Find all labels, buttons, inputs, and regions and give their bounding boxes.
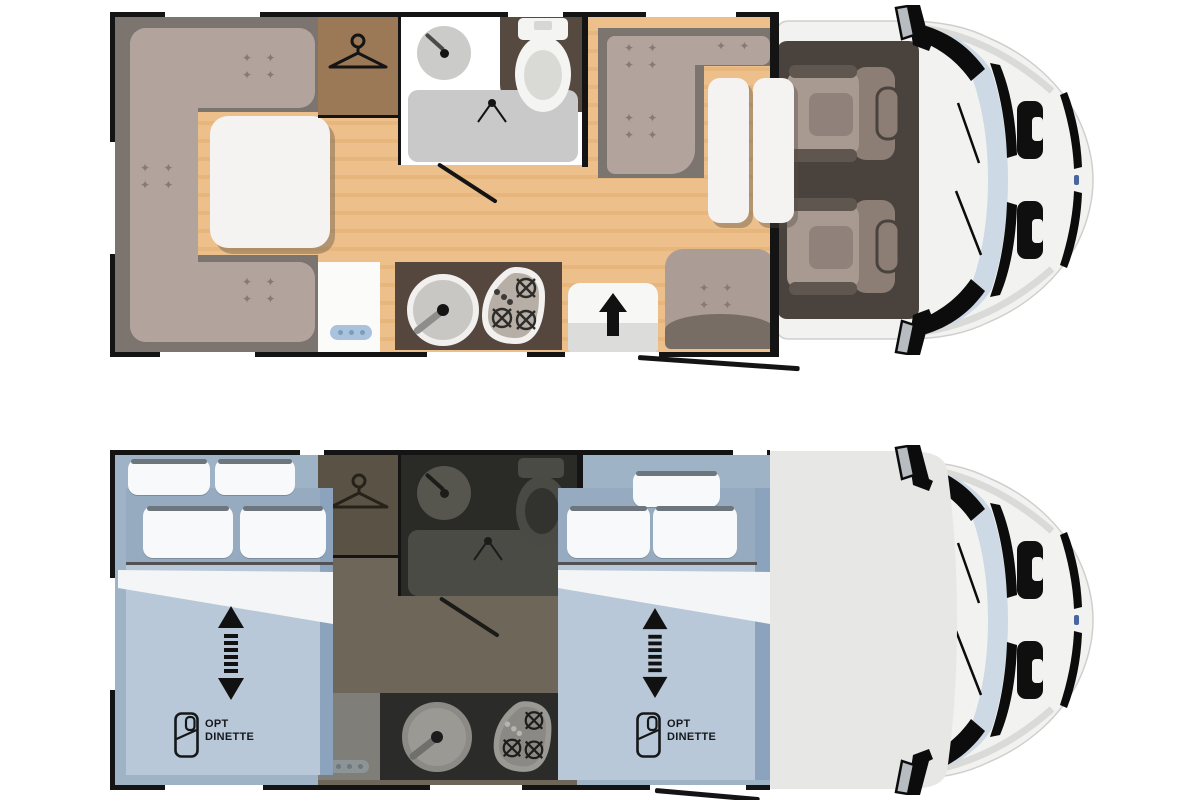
sparkle-icon: ✦ ✦ [716, 38, 754, 55]
sink-faucet-dot [440, 49, 449, 58]
front-bed-divider [558, 562, 757, 565]
pillow [240, 506, 326, 558]
open-entry-door [638, 355, 800, 371]
bathroom-dinette-wall [582, 15, 588, 167]
shower-faucet-icon [472, 96, 512, 126]
sparkle-icon: ✦ ✦ ✦ ✦ [242, 50, 280, 84]
rear-bed-divider [126, 562, 333, 565]
toilet-bowl-inner [525, 488, 559, 534]
kitchen-faucet-dot [437, 304, 449, 316]
dinette-bed-icon [636, 712, 661, 758]
window [300, 450, 324, 455]
opt-dinette-label: OPT DINETTE [667, 718, 716, 744]
bathroom-wall [398, 15, 401, 165]
front-bed-edge [755, 488, 770, 780]
window [733, 450, 767, 455]
passenger-seat [787, 65, 899, 162]
pillow [653, 506, 737, 558]
dinette-table-left-half [708, 78, 749, 223]
hob-burner-icon [478, 264, 550, 348]
cab-day [755, 5, 1100, 355]
opt-dinette-line1: OPT [205, 718, 229, 730]
cab-front-day [755, 5, 1100, 355]
sparkle-icon: ✦ ✦ ✦ ✦ [624, 40, 662, 74]
cab-night [755, 445, 1100, 795]
rear-lounge-table [210, 116, 330, 248]
pillow [633, 471, 720, 507]
dinette-bed-icon [174, 712, 199, 758]
shower-faucet-icon [468, 534, 508, 564]
day-layout-plan: ✦ ✦ ✦ ✦ ✦ ✦ ✦ ✦ ✦ ✦ ✦ ✦ [110, 12, 779, 357]
bed-extend-arrow-icon [642, 608, 668, 698]
window [160, 352, 255, 357]
fridge-control-panel [329, 760, 369, 773]
badge [1074, 175, 1079, 185]
rear-lounge-cushion-bottom [130, 262, 315, 342]
opt-dinette-label: OPT DINETTE [205, 718, 254, 744]
wardrobe [318, 15, 398, 115]
toilet-flush-button [534, 21, 552, 30]
cab-roof-overbed [761, 451, 957, 789]
travel-seat-base [665, 314, 775, 349]
window [430, 785, 522, 790]
night-layout-plan: OPT DINETTE OPT DINETTE [110, 450, 770, 790]
pillow [143, 506, 233, 558]
sparkle-icon: ✦ ✦ ✦ ✦ [624, 110, 662, 144]
sparkle-icon: ✦ ✦ ✦ ✦ [699, 280, 737, 314]
bathroom-wall [398, 455, 401, 596]
window [646, 12, 736, 17]
toilet-tank-night [518, 458, 564, 478]
hanger-icon [318, 15, 398, 115]
kitchen-faucet-dot [431, 731, 443, 743]
sparkle-icon: ✦ ✦ ✦ ✦ [140, 160, 178, 194]
opt-dinette-line2: DINETTE [667, 731, 716, 743]
opt-dinette-line1: OPT [667, 718, 691, 730]
bed-extend-arrow-icon [218, 606, 244, 700]
sink-faucet-dot [440, 489, 449, 498]
fridge-control-panel [330, 325, 372, 340]
window [427, 352, 527, 357]
wardrobe-door-line [318, 115, 398, 118]
window-rear [110, 142, 115, 254]
toilet-bowl-inner [524, 50, 562, 100]
badge [1074, 615, 1079, 625]
window [508, 12, 563, 17]
wall-top [110, 450, 770, 455]
pillow [215, 459, 295, 495]
driver-seat [787, 198, 899, 295]
pillow [567, 506, 650, 558]
dinette-table-right-half [753, 78, 794, 223]
pillow [128, 459, 210, 495]
sparkle-icon: ✦ ✦ ✦ ✦ [242, 274, 280, 308]
hob-burner-icon [490, 698, 556, 776]
motorhome-floorplan-diagram: ✦ ✦ ✦ ✦ ✦ ✦ ✦ ✦ ✦ ✦ ✦ ✦ [0, 0, 1200, 800]
entry-arrow-icon [599, 293, 627, 337]
opt-dinette-line2: DINETTE [205, 731, 254, 743]
window [165, 12, 260, 17]
window [165, 785, 263, 790]
window-rear [110, 578, 115, 690]
cab-front-night [755, 445, 1100, 795]
